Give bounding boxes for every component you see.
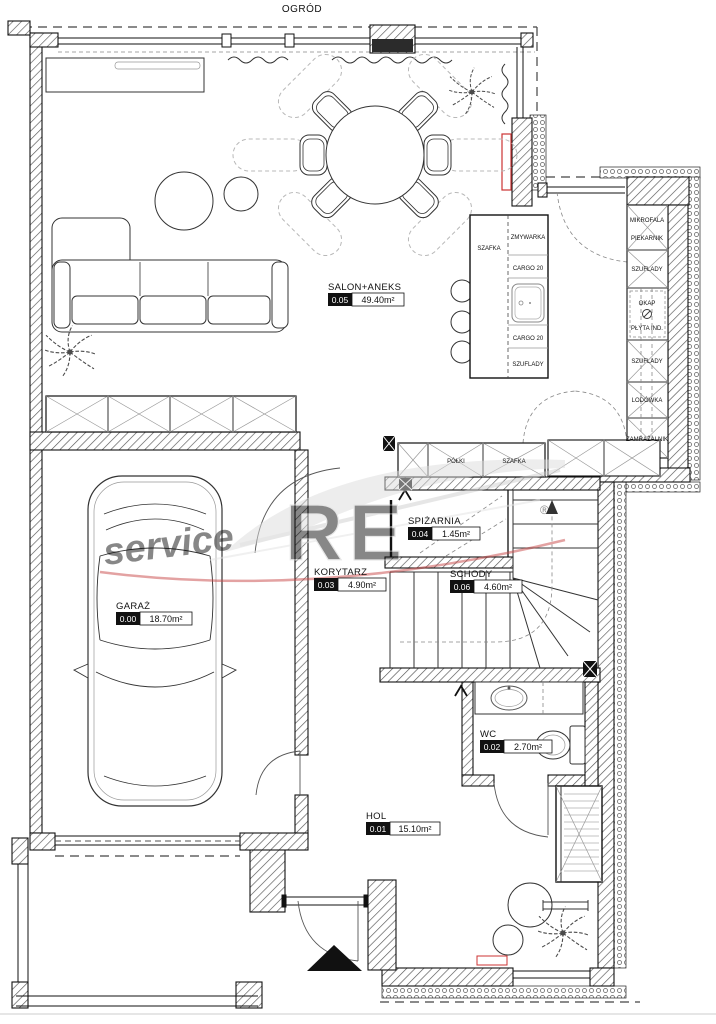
svg-text:0.06: 0.06 [454, 582, 471, 592]
svg-text:CARGO 20: CARGO 20 [513, 266, 544, 272]
svg-text:0.02: 0.02 [484, 742, 501, 752]
svg-text:SCHODY: SCHODY [450, 569, 493, 580]
room-label-hol: HOL 0.01 15.10m² [366, 811, 440, 835]
svg-text:SZUFLADY: SZUFLADY [631, 359, 662, 365]
svg-text:ZMYWARKA: ZMYWARKA [511, 235, 545, 241]
svg-text:WC: WC [480, 729, 496, 740]
svg-text:SZUFLADY: SZUFLADY [512, 362, 543, 368]
svg-text:KORYTARZ: KORYTARZ [314, 567, 367, 578]
corner-sofa [52, 218, 288, 332]
svg-text:PÓŁKI: PÓŁKI [447, 458, 465, 465]
svg-text:49.40m²: 49.40m² [361, 295, 394, 305]
svg-text:PIEKARNIK: PIEKARNIK [631, 236, 663, 242]
svg-text:1.45m²: 1.45m² [442, 529, 470, 539]
sink [512, 284, 544, 322]
curtain-wave [228, 57, 288, 63]
coffee-table-small [224, 177, 258, 211]
svg-text:0.00: 0.00 [120, 614, 137, 624]
room-label-wc: WC 0.02 2.70m² [480, 729, 552, 753]
svg-text:CARGO 20: CARGO 20 [513, 336, 544, 342]
hall-table-small [493, 925, 523, 955]
radiator [502, 134, 511, 190]
plant [448, 68, 496, 114]
doormat [477, 956, 507, 965]
hall [477, 786, 602, 965]
garden-label: OGRÓD [282, 2, 322, 15]
plant [44, 326, 97, 376]
svg-text:GARAŻ: GARAŻ [116, 601, 150, 612]
svg-text:4.60m²: 4.60m² [484, 582, 512, 592]
svg-text:2.70m²: 2.70m² [514, 742, 542, 752]
entrance-arrow-icon [307, 945, 362, 971]
floor-plan-page: RE service ® OGRÓD SALON+ANEKS 0.05 49.4… [0, 0, 716, 1024]
island-side-label: SZAFKA [477, 246, 500, 252]
svg-text:PŁYTA IND.: PŁYTA IND. [631, 326, 663, 332]
svg-text:15.10m²: 15.10m² [398, 824, 431, 834]
salon-wardrobe-row [46, 396, 296, 432]
svg-text:0.05: 0.05 [332, 295, 349, 305]
dining-table [326, 106, 424, 204]
svg-text:0.04: 0.04 [412, 529, 429, 539]
watermark-reg-icon: ® [540, 503, 549, 517]
curtain-wave [502, 64, 508, 124]
living-room-furniture [46, 57, 511, 332]
svg-text:ZAMRAŻALNIK: ZAMRAŻALNIK [626, 436, 668, 443]
svg-text:18.70m²: 18.70m² [149, 614, 182, 624]
svg-text:MIKROFALA: MIKROFALA [630, 218, 664, 224]
svg-text:LODÓWKA: LODÓWKA [632, 397, 663, 404]
svg-text:OKAP: OKAP [639, 301, 656, 307]
kitchen-base-cabinets [548, 440, 660, 476]
room-label-salon: SALON+ANEKS 0.05 49.40m² [328, 282, 404, 306]
floor-plan-drawing: RE service ® OGRÓD SALON+ANEKS 0.05 49.4… [0, 0, 716, 1024]
svg-text:SPIŻARNIA: SPIŻARNIA [408, 516, 461, 527]
svg-text:SZUFLADY: SZUFLADY [631, 267, 662, 273]
svg-text:4.90m²: 4.90m² [348, 580, 376, 590]
svg-text:0.03: 0.03 [318, 580, 335, 590]
svg-text:0.01: 0.01 [370, 824, 387, 834]
svg-text:SALON+ANEKS: SALON+ANEKS [328, 282, 401, 293]
svg-text:SZAFKA: SZAFKA [502, 459, 525, 465]
room-label-schody: SCHODY 0.06 4.60m² [450, 569, 522, 593]
coffee-table-large [155, 172, 213, 230]
tv-sideboard [46, 58, 204, 92]
watermark-brand: RE [285, 488, 408, 577]
hall-table-large [508, 883, 552, 927]
room-label-spizarnia: SPIŻARNIA 0.04 1.45m² [408, 516, 480, 540]
wardrobe [556, 786, 602, 882]
svg-text:HOL: HOL [366, 811, 386, 822]
